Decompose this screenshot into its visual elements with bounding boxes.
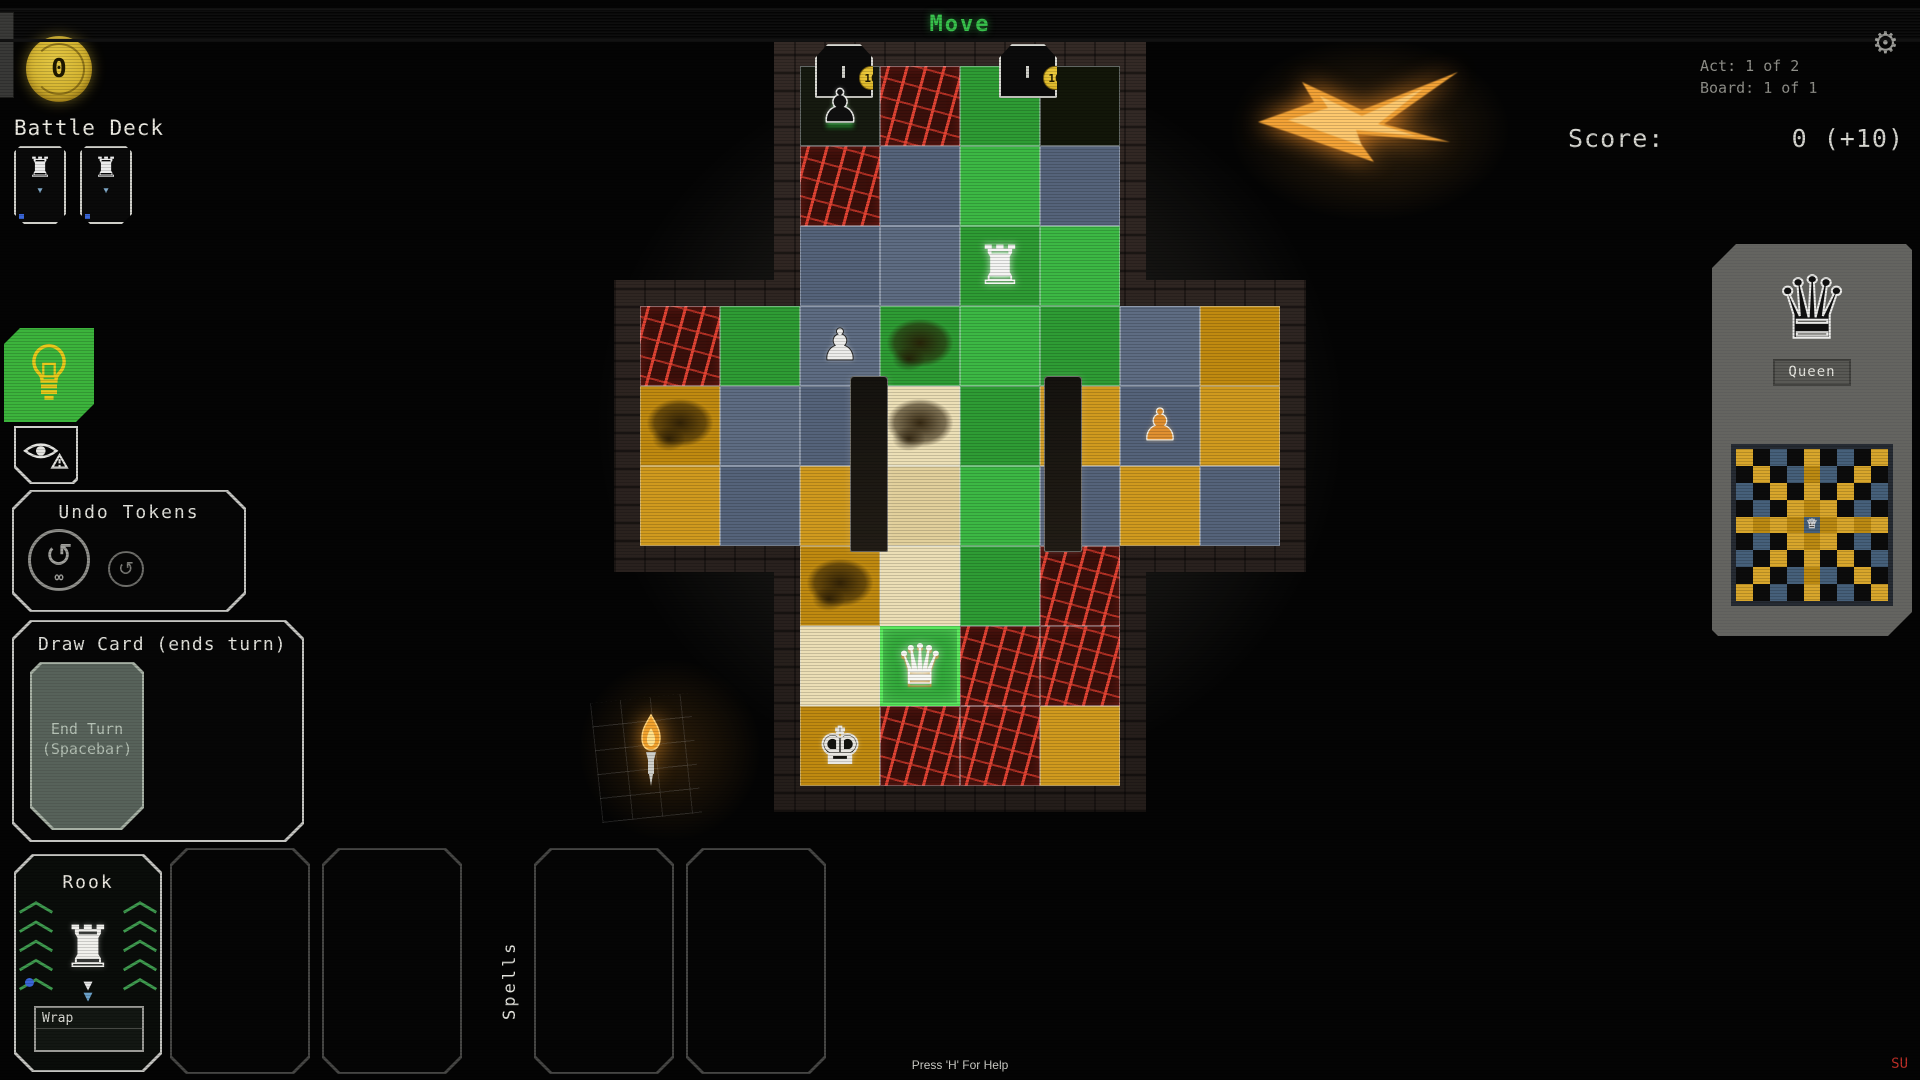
infinite-undo-token[interactable]: ↺∞ — [28, 529, 90, 591]
queen-piece[interactable]: ♛ — [880, 626, 960, 706]
wall-pillar — [850, 376, 888, 552]
queen-icon: ♛ — [1712, 262, 1912, 357]
help-hint: Press 'H' For Help — [0, 1058, 1920, 1072]
end-turn-card[interactable]: End Turn (Spacebar) — [30, 662, 144, 830]
score-label: Score: — [1568, 124, 1664, 153]
preview-cell — [1854, 550, 1871, 567]
score-row: Score: 0 (+10) — [1568, 124, 1904, 153]
preview-move-cell — [1871, 517, 1888, 534]
king-piece[interactable]: ♚ — [800, 706, 880, 786]
board-tile-gold[interactable] — [1040, 706, 1120, 786]
enemy-maid-piece[interactable]: ♟ — [800, 306, 880, 386]
preview-cell — [1837, 567, 1854, 584]
board-tile-green[interactable] — [1040, 306, 1120, 386]
mana-dot — [25, 978, 34, 987]
preview-move-cell — [1753, 466, 1770, 483]
preview-move-cell — [1770, 517, 1787, 534]
board-tile-slate[interactable] — [1040, 146, 1120, 226]
end-turn-line1: End Turn — [51, 720, 123, 740]
preview-cell — [1820, 449, 1837, 466]
preview-move-cell — [1820, 533, 1837, 550]
mud-stain — [880, 306, 960, 386]
coin-value: 0 — [51, 54, 67, 84]
preview-cell — [1854, 483, 1871, 500]
board-tile-tan[interactable] — [800, 626, 880, 706]
board-tile-lava[interactable] — [880, 66, 960, 146]
board-tile-slate[interactable] — [1120, 306, 1200, 386]
preview-move-cell — [1787, 500, 1804, 517]
enemy-archer-piece[interactable]: ♟ — [1120, 386, 1200, 466]
undo-tokens-title: Undo Tokens — [14, 502, 244, 523]
empty-card-slot[interactable] — [322, 848, 462, 1074]
torch-icon — [636, 712, 666, 794]
preview-move-cell — [1736, 584, 1753, 601]
preview-cell — [1753, 500, 1770, 517]
end-turn-line2: (Spacebar) — [42, 740, 132, 760]
coin-counter: 0 — [26, 36, 92, 102]
progress-info: Act: 1 of 2 Board: 1 of 1 — [1700, 56, 1817, 100]
preview-move-cell — [1736, 449, 1753, 466]
preview-cell — [1871, 533, 1888, 550]
preview-cell — [1854, 584, 1871, 601]
preview-move-cell — [1736, 517, 1753, 534]
preview-move-cell — [1854, 517, 1871, 534]
mud-stain — [800, 546, 880, 626]
preview-cell — [1837, 466, 1854, 483]
board-tile-gold[interactable] — [1120, 466, 1200, 546]
piece-inspector-panel: ♛ Queen ♛ — [1712, 244, 1912, 636]
preview-cell — [1837, 533, 1854, 550]
preview-cell — [1736, 483, 1753, 500]
lightning-bolt-icon — [1258, 60, 1458, 184]
preview-cell — [1770, 500, 1787, 517]
enemy-pawn-piece[interactable]: ♟ — [800, 66, 880, 146]
board-tile-slate[interactable] — [800, 226, 880, 306]
battle-deck-card-rook[interactable]: ♜▾ — [80, 146, 132, 224]
preview-move-cell — [1854, 466, 1871, 483]
preview-cell — [1736, 533, 1753, 550]
preview-cell — [1736, 466, 1753, 483]
rook-icon: ♜ — [62, 918, 114, 976]
preview-cell — [1820, 584, 1837, 601]
preview-cell — [1736, 567, 1753, 584]
preview-cell — [1736, 500, 1753, 517]
preview-move-cell — [1787, 517, 1804, 534]
preview-move-cell — [1804, 449, 1821, 466]
board-tile-green[interactable] — [960, 386, 1040, 466]
inspected-piece-label: Queen — [1773, 359, 1851, 386]
lightbulb-icon — [23, 341, 75, 409]
board-tile-lava[interactable] — [1040, 626, 1120, 706]
rook-piece[interactable]: ♜ — [960, 226, 1040, 306]
preview-cell — [1736, 550, 1753, 567]
preview-cell — [1854, 449, 1871, 466]
eye-warning-icon — [16, 428, 76, 482]
draw-card-panel: Draw Card (ends turn) End Turn (Spacebar… — [12, 620, 304, 842]
board-tile-lava[interactable] — [880, 706, 960, 786]
preview-cell — [1787, 584, 1804, 601]
preview-cell — [1787, 466, 1804, 483]
infinity-icon: ∞ — [54, 568, 63, 586]
mana-dot — [85, 214, 90, 219]
preview-cell — [1837, 500, 1854, 517]
board-tile-lava[interactable] — [640, 306, 720, 386]
battle-deck-cards: ♜▾♜▾ — [14, 146, 132, 224]
preview-move-cell — [1804, 483, 1821, 500]
turn-phase-title: Move — [930, 12, 991, 37]
empty-spell-slot[interactable] — [686, 848, 826, 1074]
preview-cell — [1787, 449, 1804, 466]
board-tile-green[interactable] — [960, 546, 1040, 626]
preview-cell — [1837, 584, 1854, 601]
movement-preview-board: ♛ — [1731, 444, 1893, 606]
board-tile-lava[interactable] — [1040, 546, 1120, 626]
preview-cell — [1770, 449, 1787, 466]
top-bar: Move — [0, 8, 1920, 42]
corner-tag: SU — [1891, 1056, 1908, 1072]
preview-move-cell — [1804, 500, 1821, 517]
score-value: 0 (+10) — [1792, 124, 1904, 153]
preview-move-cell — [1804, 584, 1821, 601]
act-counter: Act: 1 of 2 — [1700, 56, 1817, 78]
single-undo-token[interactable]: ↺ — [108, 551, 144, 587]
card-keyword-box: Wrap — [34, 1006, 144, 1052]
spells-label: Spells — [500, 900, 520, 1020]
preview-cell — [1820, 466, 1837, 483]
preview-move-cell — [1804, 550, 1821, 567]
undo-tokens-panel: Undo Tokens ↺∞↺ — [12, 490, 246, 612]
preview-cell — [1871, 500, 1888, 517]
battle-deck-label: Battle Deck — [14, 116, 164, 140]
board-tile-slate[interactable] — [720, 466, 800, 546]
board-tile-tan[interactable] — [880, 466, 960, 546]
preview-cell — [1854, 500, 1871, 517]
board-tile-green[interactable] — [1040, 226, 1120, 306]
mana-dot — [19, 214, 24, 219]
preview-move-cell — [1753, 517, 1770, 534]
board-tile-slate[interactable] — [1200, 466, 1280, 546]
preview-cell — [1871, 466, 1888, 483]
zigzag-right-icon — [123, 899, 157, 995]
preview-cell — [1854, 533, 1871, 550]
preview-cell — [1871, 550, 1888, 567]
battle-deck-card-rook[interactable]: ♜▾ — [14, 146, 66, 224]
preview-move-cell — [1854, 567, 1871, 584]
preview-move-cell — [1871, 584, 1888, 601]
wall-pillar — [1044, 376, 1082, 552]
preview-move-cell — [1837, 517, 1854, 534]
preview-move-cell — [1820, 500, 1837, 517]
preview-cell — [1820, 567, 1837, 584]
preview-move-cell — [1837, 483, 1854, 500]
board-tile-tan[interactable] — [880, 546, 960, 626]
preview-move-cell — [1770, 483, 1787, 500]
board-tile-green[interactable] — [960, 146, 1040, 226]
preview-cell — [1770, 533, 1787, 550]
preview-move-cell — [1770, 550, 1787, 567]
preview-move-cell — [1871, 449, 1888, 466]
undo-arrow-icon: ↺ — [118, 560, 134, 579]
queen-icon: ♛ — [1806, 518, 1818, 531]
card-keyword: Wrap — [42, 1011, 73, 1026]
hand-card-rook[interactable]: Rook ♜ ▼▼ Wrap — [14, 854, 162, 1072]
preview-cell — [1770, 567, 1787, 584]
board-counter: Board: 1 of 1 — [1700, 78, 1817, 100]
board-tile-gold[interactable] — [640, 466, 720, 546]
chevron-down-icon: ▾ — [36, 184, 44, 197]
hint-button[interactable] — [4, 328, 94, 422]
preview-cell — [1753, 483, 1770, 500]
preview-cell — [1871, 483, 1888, 500]
inspected-piece-name: Queen — [1788, 364, 1835, 380]
board-tile-green[interactable] — [960, 466, 1040, 546]
rook-card-art: ♜ ▼▼ — [23, 899, 153, 995]
preview-move-cell — [1753, 567, 1770, 584]
preview-cell — [1753, 550, 1770, 567]
card-title: Rook — [16, 872, 160, 893]
preview-move-cell — [1837, 550, 1854, 567]
preview-cell — [1770, 584, 1787, 601]
preview-move-cell — [1804, 567, 1821, 584]
preview-move-cell — [1820, 517, 1837, 534]
empty-spell-slot[interactable] — [534, 848, 674, 1074]
board-tile-slate[interactable] — [880, 226, 960, 306]
preview-move-cell — [1804, 533, 1821, 550]
board-tile-green[interactable] — [960, 306, 1040, 386]
preview-move-cell: ♛ — [1804, 517, 1821, 534]
board-tile-green[interactable] — [720, 306, 800, 386]
preview-cell — [1820, 483, 1837, 500]
preview-cell — [1770, 466, 1787, 483]
chevron-down-icon: ▾ — [102, 184, 110, 197]
preview-cell — [1787, 567, 1804, 584]
draw-card-title: Draw Card (ends turn) — [38, 634, 302, 655]
board-tile-gold[interactable] — [1200, 306, 1280, 386]
rook-icon: ♜ — [27, 154, 52, 182]
empty-card-slot[interactable] — [170, 848, 310, 1074]
preview-cell — [1753, 533, 1770, 550]
preview-cell — [1820, 550, 1837, 567]
board-tile-slate[interactable] — [880, 146, 960, 226]
undo-token-list: ↺∞↺ — [28, 529, 244, 591]
board-tile-lava[interactable] — [960, 706, 1040, 786]
board-tile-slate[interactable] — [720, 386, 800, 466]
preview-cell — [1787, 550, 1804, 567]
board-tile-gold[interactable] — [1200, 386, 1280, 466]
preview-move-cell — [1787, 533, 1804, 550]
board-tile-lava[interactable] — [800, 146, 880, 226]
settings-gear-icon[interactable]: ⚙ — [1872, 26, 1899, 61]
visibility-button[interactable] — [14, 426, 78, 484]
preview-cell — [1871, 567, 1888, 584]
dungeon-door: 10 — [999, 44, 1057, 98]
preview-cell — [1837, 449, 1854, 466]
preview-move-cell — [1804, 466, 1821, 483]
board-tile-lava[interactable] — [960, 626, 1040, 706]
mud-stain — [640, 386, 720, 466]
preview-cell — [1753, 584, 1770, 601]
rook-icon: ♜ — [93, 154, 118, 182]
preview-cell — [1753, 449, 1770, 466]
mud-stain — [880, 386, 960, 466]
preview-cell — [1787, 483, 1804, 500]
